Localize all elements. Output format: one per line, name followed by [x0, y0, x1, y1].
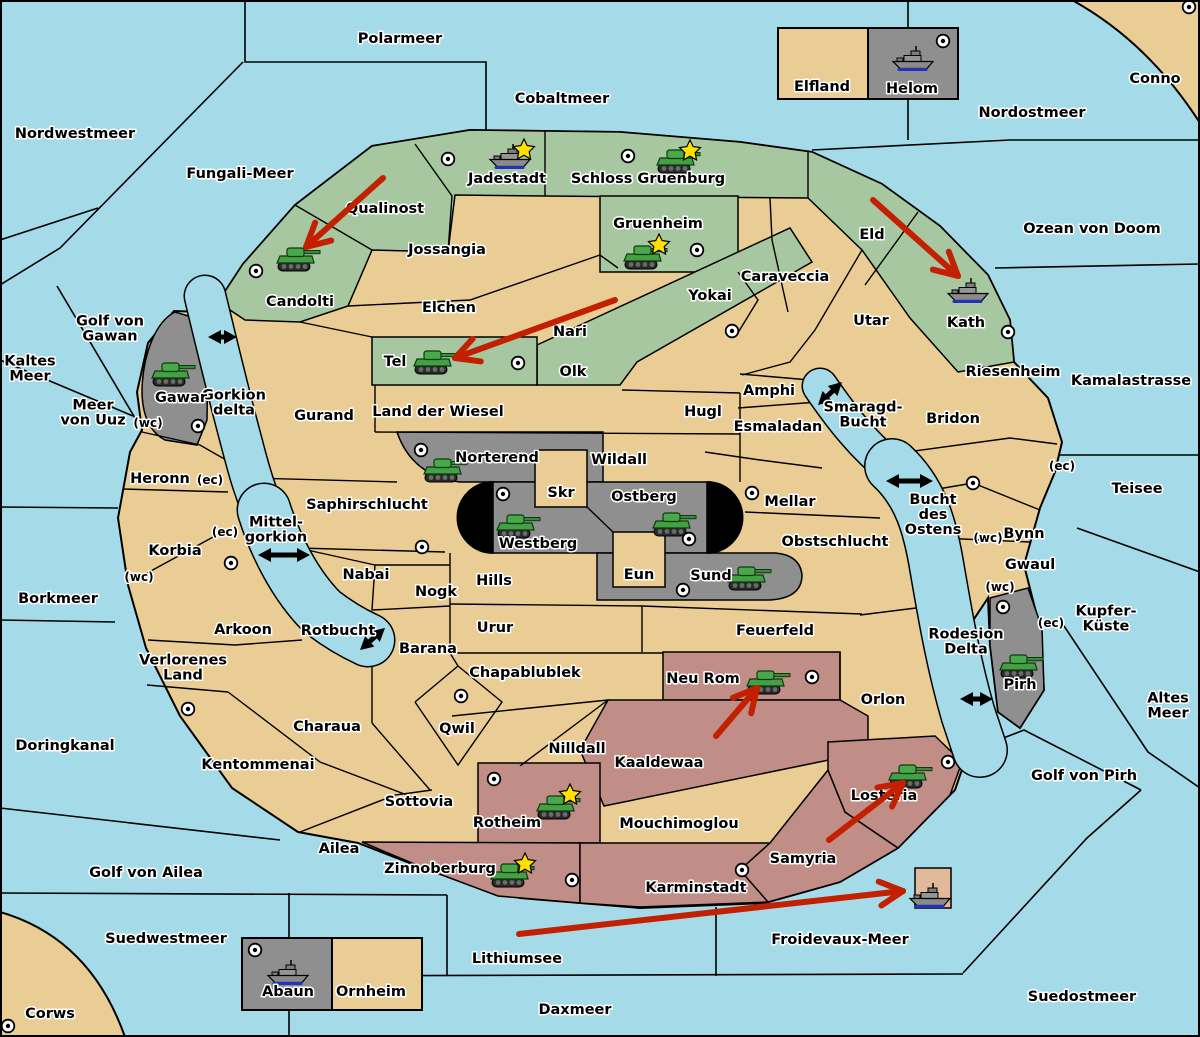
city-marker-icon [806, 671, 819, 684]
city-marker-icon [942, 756, 955, 769]
label-lithiumsee: Lithiumsee [472, 951, 562, 967]
city-marker-icon [249, 944, 262, 957]
label-golf-von-ailea: Golf von Ailea [89, 865, 203, 881]
label-kamalastrasse: Kamalastrasse [1071, 373, 1191, 389]
label-feuerfeld: Feuerfeld [736, 623, 814, 639]
city-marker-icon [937, 35, 950, 48]
label-utar: Utar [853, 313, 889, 329]
city-marker-icon [1002, 326, 1015, 339]
label-wc-148: (wc) [133, 416, 162, 430]
label-golf-von-gawan: Golf vonGawan [76, 314, 144, 345]
city-marker-icon [497, 488, 510, 501]
label-gwaul: Gwaul [1005, 557, 1055, 573]
label-helom: Helom [886, 81, 938, 97]
label-ec-1062: (ec) [1049, 459, 1075, 473]
label-neu-rom: Neu Rom [666, 671, 740, 687]
city-marker-icon [566, 874, 579, 887]
label-jadestadt: Jadestadt [467, 171, 546, 187]
label-heronn: Heronn [130, 471, 190, 487]
label-candolti: Candolti [266, 294, 334, 310]
label-mittel-gorkion: Mittel-gorkion [245, 515, 307, 546]
label-doringkanal: Doringkanal [15, 738, 114, 754]
city-marker-icon [415, 444, 428, 457]
label-golf-von-pirh: Golf von Pirh [1031, 768, 1137, 784]
label-land-der-wiesel: Land der Wiesel [372, 404, 503, 420]
label-bridon: Bridon [926, 411, 980, 427]
label-eld: Eld [859, 227, 884, 243]
label-riesenheim: Riesenheim [966, 364, 1061, 380]
label-ailea: Ailea [319, 841, 360, 857]
label-nordwestmeer: Nordwestmeer [15, 126, 136, 142]
city-marker-icon [488, 773, 501, 786]
label-suedostmeer: Suedostmeer [1028, 989, 1137, 1005]
label-jossangia: Jossangia [407, 242, 486, 258]
label-gruenheim: Gruenheim [613, 216, 703, 232]
label-wildall: Wildall [591, 452, 647, 468]
city-marker-icon [997, 601, 1010, 614]
label-chapablublek: Chapablublek [469, 665, 581, 681]
label-nabai: Nabai [342, 567, 389, 583]
label-ec-225: (ec) [212, 525, 238, 539]
label-barana: Barana [399, 641, 457, 657]
label-eun: Eun [624, 567, 655, 583]
label-rotheim: Rotheim [473, 815, 541, 831]
label-fungali-meer: Fungali-Meer [186, 166, 294, 182]
label-borkmeer: Borkmeer [18, 591, 99, 607]
label-obstschlucht: Obstschlucht [782, 534, 889, 550]
region-gruenheim[interactable] [600, 196, 738, 272]
city-marker-icon [746, 487, 759, 500]
label-samyria: Samyria [770, 851, 837, 867]
label-amphi: Amphi [743, 383, 795, 399]
label-kaltes-meer: KaltesMeer [4, 354, 55, 385]
label-conno: Conno [1129, 71, 1180, 87]
label-altes-meer: AltesMeer [1147, 691, 1189, 722]
label-nari: Nari [553, 324, 587, 340]
city-marker-icon [726, 325, 739, 338]
label-corws: Corws [25, 1006, 75, 1022]
city-marker-icon [182, 703, 195, 716]
label-korbia: Korbia [148, 543, 201, 559]
label-nogk: Nogk [415, 584, 457, 600]
label-urur: Urur [477, 620, 514, 636]
label-rotbucht: Rotbucht [301, 623, 376, 639]
label-abaun: Abaun [262, 984, 314, 1000]
city-marker-icon [2, 1020, 15, 1033]
label-cobaltmeer: Cobaltmeer [515, 91, 610, 107]
city-marker-icon [192, 420, 205, 433]
city-marker-icon [250, 265, 263, 278]
label-kaaldewaa: Kaaldewaa [615, 755, 704, 771]
label-zinnoberburg: Zinnoberburg [384, 861, 496, 877]
label-olk: Olk [560, 364, 587, 380]
label-norterend: Norterend [455, 450, 539, 466]
label-esmaladan: Esmaladan [734, 419, 823, 435]
label-caraveccia: Caraveccia [741, 269, 830, 285]
label-kentommenai: Kentommenai [201, 757, 314, 773]
city-marker-icon [691, 244, 704, 257]
label-gurand: Gurand [294, 408, 354, 424]
city-marker-icon [225, 557, 238, 570]
city-marker-icon [967, 477, 980, 490]
label-ornheim: Ornheim [336, 984, 406, 1000]
city-marker-icon [512, 357, 525, 370]
label-nilldall: Nilldall [548, 741, 605, 757]
label-kupfer-k-ste: Kupfer-Küste [1076, 604, 1137, 635]
label-yokai: Yokai [687, 288, 732, 304]
label-ozean-von-doom: Ozean von Doom [1023, 221, 1161, 237]
city-marker-icon [1183, 1, 1196, 14]
label-karminstadt: Karminstadt [645, 880, 746, 896]
label-charaua: Charaua [293, 719, 361, 735]
label-wc-988: (wc) [973, 531, 1002, 545]
label-teisee: Teisee [1111, 481, 1162, 497]
city-marker-icon [736, 864, 749, 877]
label-elchen: Elchen [422, 300, 476, 316]
city-marker-icon [622, 150, 635, 163]
label-gawar: Gawar [155, 390, 208, 406]
label-ostberg: Ostberg [611, 489, 677, 505]
label-schloss-gruenburg: Schloss Gruenburg [571, 171, 725, 187]
label-ec-1051: (ec) [1038, 616, 1064, 630]
city-marker-icon [416, 541, 429, 554]
label-polarmeer: Polarmeer [358, 31, 443, 47]
label-arkoon: Arkoon [214, 622, 272, 638]
label-wc-139: (wc) [124, 570, 153, 584]
city-marker-icon [677, 584, 690, 597]
label-sottovia: Sottovia [385, 794, 453, 810]
label-saphirschlucht: Saphirschlucht [306, 497, 428, 513]
city-marker-icon [442, 153, 455, 166]
label-daxmeer: Daxmeer [538, 1002, 612, 1018]
label-nordostmeer: Nordostmeer [978, 105, 1086, 121]
game-map: PolarmeerNordwestmeerFungali-MeerCobaltm… [0, 0, 1200, 1037]
label-wc-1000: (wc) [985, 580, 1014, 594]
label-westberg: Westberg [499, 536, 578, 552]
label-orlon: Orlon [861, 692, 906, 708]
label-froidevaux-meer: Froidevaux-Meer [771, 932, 909, 948]
label-pirh: Pirh [1003, 677, 1036, 693]
label-skr: Skr [547, 485, 575, 501]
label-hugl: Hugl [684, 404, 722, 420]
city-marker-icon [455, 690, 468, 703]
label-suedwestmeer: Suedwestmeer [105, 931, 228, 947]
label-bynn: Bynn [1003, 526, 1044, 542]
label-kath: Kath [947, 315, 985, 331]
label-mouchimoglou: Mouchimoglou [619, 816, 738, 832]
label-qwil: Qwil [439, 721, 475, 737]
label-tel: Tel [384, 354, 407, 370]
label-elfland: Elfland [794, 79, 850, 95]
label-hills: Hills [476, 573, 512, 589]
label-mellar: Mellar [764, 494, 816, 510]
label-ec-210: (ec) [197, 473, 223, 487]
label-sund: Sund [690, 568, 731, 584]
city-marker-icon [683, 533, 696, 546]
